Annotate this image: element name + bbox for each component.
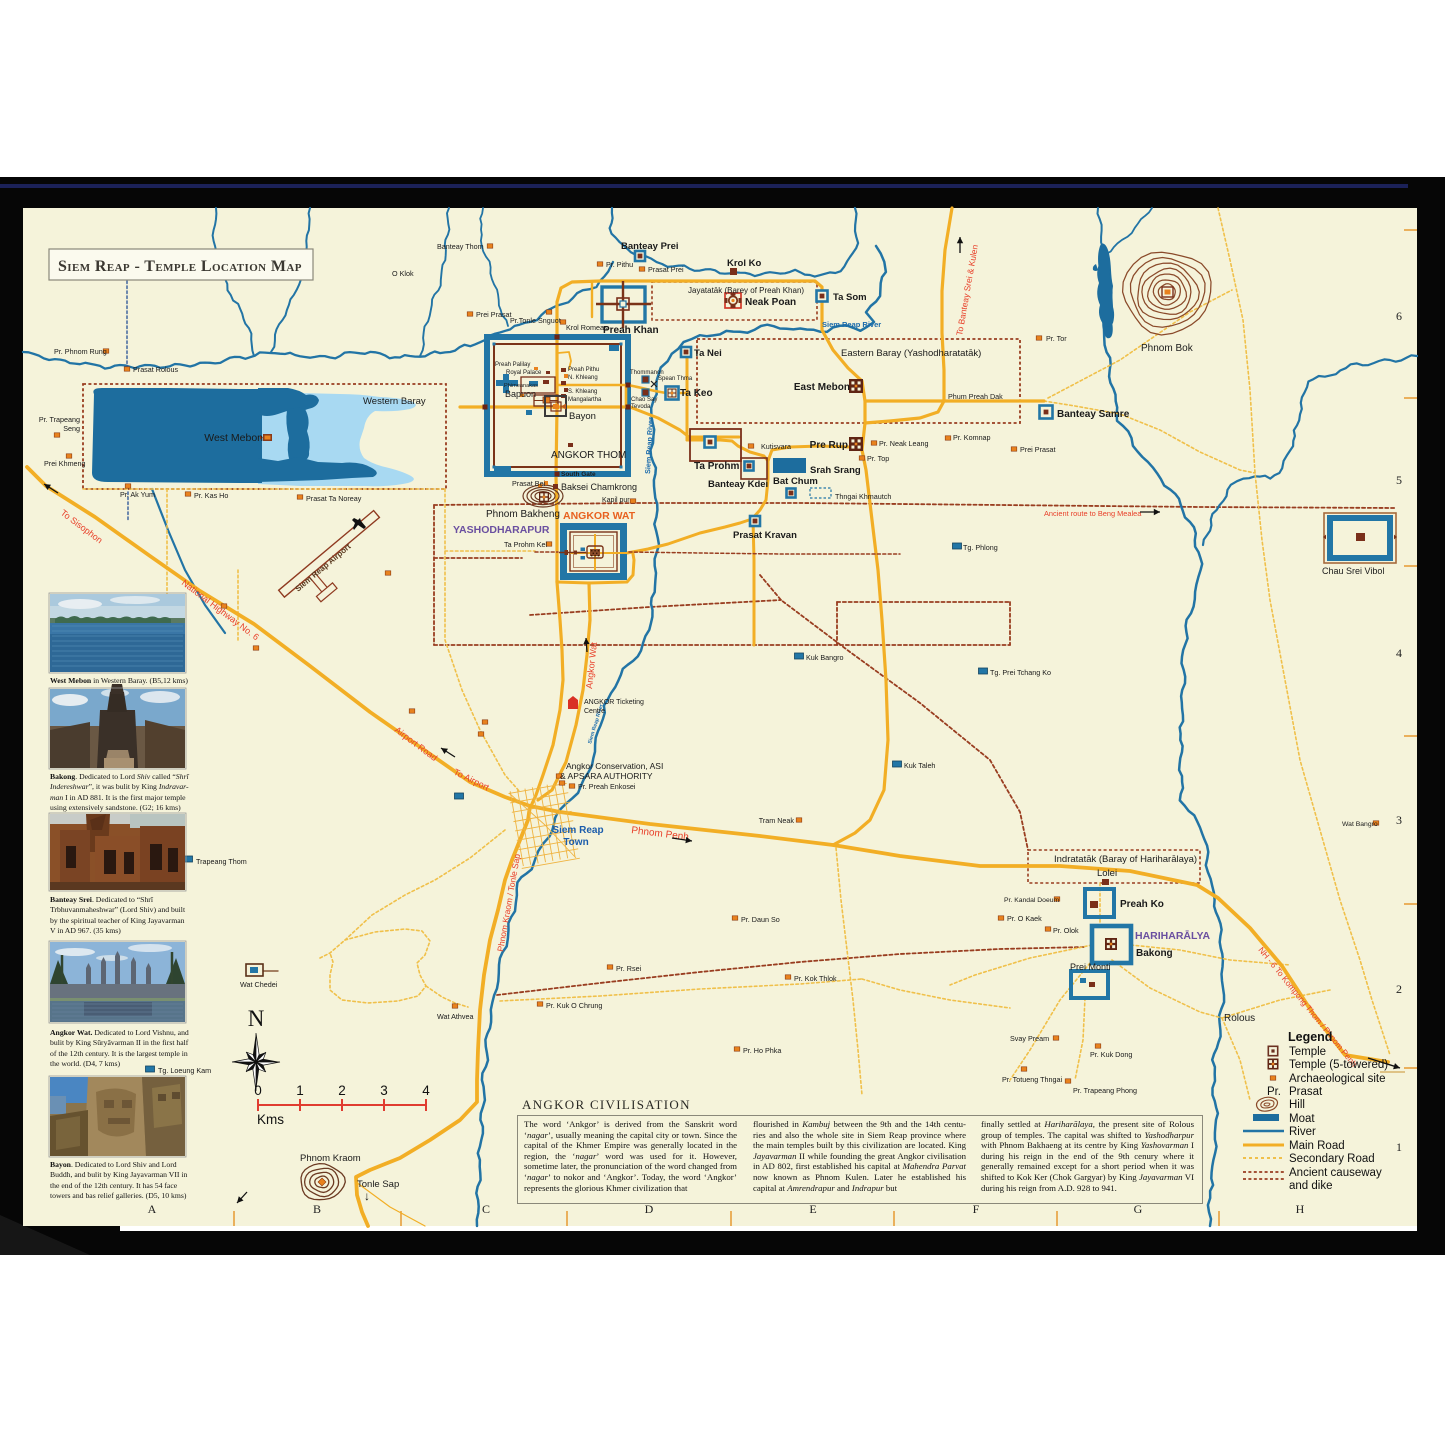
svg-text:E: E (809, 1202, 816, 1216)
svg-text:Preah Pithu: Preah Pithu (568, 367, 599, 373)
svg-text:Bayon: Bayon (569, 411, 596, 422)
svg-text:Srah Srang: Srah Srang (810, 465, 861, 476)
svg-text:Pr. Phnom Rung: Pr. Phnom Rung (54, 347, 107, 356)
svg-text:Prasat: Prasat (1289, 1086, 1323, 1098)
svg-text:0: 0 (254, 1083, 262, 1098)
svg-text:Tg. Prei Tchang Ko: Tg. Prei Tchang Ko (990, 668, 1051, 677)
svg-text:G: G (1134, 1202, 1143, 1216)
svg-text:Tg. Phlong: Tg. Phlong (963, 543, 998, 552)
svg-text:Temple (5-towered): Temple (5-towered) (1289, 1059, 1388, 1071)
svg-text:Pr. Olok: Pr. Olok (1053, 926, 1079, 935)
svg-text:N: N (248, 1006, 265, 1031)
svg-text:Kuk Taleh: Kuk Taleh (904, 761, 935, 770)
svg-text:Western Baray: Western Baray (363, 396, 426, 407)
svg-text:C: C (482, 1202, 490, 1216)
svg-text:Pr.: Pr. (1267, 1086, 1281, 1098)
svg-text:Bat Chum: Bat Chum (773, 476, 818, 487)
svg-text:Prasat Bei: Prasat Bei (512, 479, 546, 488)
svg-text:N. Khleang: N. Khleang (568, 375, 598, 381)
svg-text:Town: Town (563, 837, 588, 848)
svg-text:H: H (1296, 1202, 1305, 1216)
svg-text:Baksei Chamkrong: Baksei Chamkrong (561, 482, 637, 492)
svg-text:Hill: Hill (1289, 1099, 1305, 1111)
svg-text:Phnom Kraom: Phnom Kraom (300, 1153, 361, 1164)
svg-text:Pr. Kuk Dong: Pr. Kuk Dong (1090, 1050, 1132, 1059)
svg-text:Ta Keo: Ta Keo (680, 388, 713, 399)
svg-text:Angkor Conservation, ASI: Angkor Conservation, ASI (566, 761, 663, 771)
svg-text:Kuk Bangro: Kuk Bangro (806, 653, 844, 662)
svg-text:Thngai Khmautch: Thngai Khmautch (835, 492, 891, 501)
svg-text:Ancient causeway: Ancient causeway (1289, 1167, 1382, 1179)
svg-text:East Mebon: East Mebon (794, 382, 850, 393)
svg-text:6: 6 (1396, 309, 1402, 323)
svg-text:HARIHARĀLYA: HARIHARĀLYA (1135, 930, 1210, 942)
svg-text:5: 5 (1396, 473, 1402, 487)
svg-text:Spean Thma: Spean Thma (658, 376, 693, 382)
svg-text:Banteay Kdei: Banteay Kdei (708, 479, 768, 490)
svg-text:Bapuon: Bapuon (505, 389, 536, 399)
svg-text:Moat: Moat (1289, 1113, 1315, 1125)
svg-text:Neak Poan: Neak Poan (745, 297, 796, 308)
svg-text:Preah Ko: Preah Ko (1120, 899, 1164, 910)
svg-text:O Klok: O Klok (392, 269, 414, 278)
svg-text:4: 4 (422, 1083, 430, 1098)
svg-text:Chau Srei Vibol: Chau Srei Vibol (1322, 566, 1384, 576)
svg-text:Ancient route to Beng Mealea: Ancient route to Beng Mealea (1044, 509, 1142, 518)
svg-text:Eastern Baray (Yashodharatatāk: Eastern Baray (Yashodharatatāk) (841, 348, 981, 359)
svg-text:& APSARA AUTHORITY: & APSARA AUTHORITY (560, 771, 653, 781)
svg-text:West Mebon: West Mebon (204, 432, 263, 444)
svg-text:Svay Pream: Svay Pream (1010, 1034, 1049, 1043)
svg-text:Phnom Bakheng: Phnom Bakheng (486, 509, 560, 520)
svg-text:Lolei: Lolei (1097, 868, 1117, 879)
svg-text:S. Khleang: S. Khleang (568, 389, 597, 395)
svg-text:Wat Chedei: Wat Chedei (240, 980, 278, 989)
svg-text:Pr. Top: Pr. Top (867, 454, 889, 463)
svg-text:and dike: and dike (1289, 1180, 1332, 1192)
svg-text:Chao Say: Chao Say (631, 397, 657, 403)
svg-text:2: 2 (1396, 982, 1402, 996)
svg-text:2: 2 (338, 1083, 346, 1098)
svg-text:Krol Romeas: Krol Romeas (566, 323, 608, 332)
svg-text:Secondary Road: Secondary Road (1289, 1153, 1375, 1165)
svg-text:↓: ↓ (364, 1189, 370, 1203)
svg-text:Pr. Totueng Thngai: Pr. Totueng Thngai (1002, 1075, 1062, 1084)
svg-text:Pr. Pithu: Pr. Pithu (606, 260, 633, 269)
svg-text:Kapil pur: Kapil pur (602, 497, 630, 504)
svg-text:Banteay Prei: Banteay Prei (621, 241, 679, 252)
svg-text:Kutisvara: Kutisvara (761, 442, 791, 451)
svg-text:Rolous: Rolous (1224, 1013, 1255, 1024)
svg-text:Prei Prasat: Prei Prasat (476, 310, 512, 319)
svg-text:Phum Preah Dak: Phum Preah Dak (948, 392, 1003, 401)
svg-text:Wat Bangro: Wat Bangro (1342, 821, 1378, 828)
svg-text:3: 3 (1396, 813, 1402, 827)
svg-text:Mangalartha: Mangalartha (568, 397, 602, 403)
svg-text:Pr.Tonle Snguot: Pr.Tonle Snguot (510, 316, 561, 325)
svg-text:Pr. Ho Phka: Pr. Ho Phka (743, 1046, 781, 1055)
svg-text:ANGKOR Ticketing: ANGKOR Ticketing (584, 699, 644, 706)
svg-text:Pr. Trapeang Phong: Pr. Trapeang Phong (1073, 1086, 1137, 1095)
svg-text:Pr. Tor: Pr. Tor (1046, 334, 1067, 343)
svg-text:Ta Prohm Kel: Ta Prohm Kel (504, 540, 548, 549)
svg-text:ANGKOR THOM: ANGKOR THOM (551, 450, 626, 461)
svg-text:Siem Reap: Siem Reap (552, 825, 603, 836)
svg-text:Kms: Kms (257, 1112, 284, 1127)
svg-text:Pr. Ak Yum: Pr. Ak Yum (120, 490, 155, 499)
svg-text:Pr. O Kaek: Pr. O Kaek (1007, 914, 1042, 923)
svg-text:Seng: Seng (63, 424, 80, 433)
svg-text:Pr. Rsei: Pr. Rsei (616, 964, 642, 973)
svg-text:1: 1 (1396, 1140, 1402, 1154)
svg-text:4: 4 (1396, 646, 1402, 660)
svg-text:B: B (313, 1202, 321, 1216)
svg-text:Phnom Bok: Phnom Bok (1141, 343, 1194, 354)
svg-text:3: 3 (380, 1083, 388, 1098)
svg-text:Royal Palace: Royal Palace (506, 370, 542, 376)
svg-text:Main Road: Main Road (1289, 1140, 1345, 1152)
svg-text:ANGKOR WAT: ANGKOR WAT (563, 510, 636, 522)
svg-text:Tevoda: Tevoda (631, 404, 651, 410)
svg-text:Siem Reap River: Siem Reap River (822, 320, 881, 329)
svg-text:Trapeang Thom: Trapeang Thom (196, 857, 247, 866)
svg-text:Pr. Daun So: Pr. Daun So (741, 915, 780, 924)
svg-text:Banteay Thom: Banteay Thom (437, 242, 484, 251)
svg-text:Ta Nei: Ta Nei (694, 348, 722, 359)
svg-text:Prei Monti: Prei Monti (1070, 962, 1111, 972)
svg-text:Prasat Kravan: Prasat Kravan (733, 530, 797, 541)
svg-text:A: A (148, 1202, 157, 1216)
svg-text:Prasat Ta Noreay: Prasat Ta Noreay (306, 494, 362, 503)
svg-text:Pr. Kok Thlok: Pr. Kok Thlok (794, 974, 837, 983)
svg-text:Wat Athvea: Wat Athvea (437, 1012, 474, 1021)
svg-text:Krol Ko: Krol Ko (727, 258, 762, 269)
svg-text:Prasat Prei: Prasat Prei (648, 265, 684, 274)
svg-text:D: D (645, 1202, 654, 1216)
svg-text:Pr. Neak Leang: Pr. Neak Leang (879, 439, 929, 448)
svg-text:Centre: Centre (584, 708, 605, 715)
svg-text:Preah Palilay: Preah Palilay (495, 362, 530, 368)
svg-text:Jayatatāk (Barey of Preah Khan: Jayatatāk (Barey of Preah Khan) (688, 286, 804, 295)
svg-text:Phimeanakas: Phimeanakas (504, 383, 538, 389)
svg-text:Prei Khmeng: Prei Khmeng (44, 459, 86, 468)
svg-text:Ta Prohm: Ta Prohm (694, 461, 739, 472)
svg-text:Pr. Kuk O Chrung: Pr. Kuk O Chrung (546, 1001, 602, 1010)
svg-text:Tram Neak: Tram Neak (759, 816, 795, 825)
svg-text:Pre Rup: Pre Rup (810, 440, 848, 451)
svg-text:Archaeological site: Archaeological site (1289, 1073, 1386, 1085)
svg-text:Banteay Samre: Banteay Samre (1057, 409, 1130, 420)
svg-text:Pr. Trapeang: Pr. Trapeang (39, 415, 80, 424)
svg-text:Indratatāk (Baray of Hariharāl: Indratatāk (Baray of Hariharālaya) (1054, 854, 1197, 865)
svg-text:Pr. Preah Enkosei: Pr. Preah Enkosei (578, 782, 636, 791)
svg-text:Pr. Komnap: Pr. Komnap (953, 433, 991, 442)
svg-text:Bakong: Bakong (1136, 948, 1173, 959)
svg-text:Pr. Kas Ho: Pr. Kas Ho (194, 491, 228, 500)
svg-text:1: 1 (296, 1083, 304, 1098)
svg-text:Ta Som: Ta Som (833, 292, 867, 303)
svg-text:Pr. Kandal Doeum: Pr. Kandal Doeum (1004, 897, 1059, 904)
svg-text:Siem Reap - Temple Location Ma: Siem Reap - Temple Location Map (58, 258, 302, 275)
svg-text:River: River (1289, 1126, 1316, 1138)
svg-text:F: F (973, 1202, 980, 1216)
svg-text:Preah Khan: Preah Khan (603, 325, 659, 336)
svg-text:South Gate: South Gate (561, 471, 596, 478)
svg-text:Prasat Rolous: Prasat Rolous (133, 365, 179, 374)
svg-text:Prei Prasat: Prei Prasat (1020, 445, 1056, 454)
svg-text:Temple: Temple (1289, 1046, 1326, 1058)
svg-text:Legend: Legend (1288, 1030, 1332, 1044)
svg-text:YASHODHARAPUR: YASHODHARAPUR (453, 524, 550, 536)
